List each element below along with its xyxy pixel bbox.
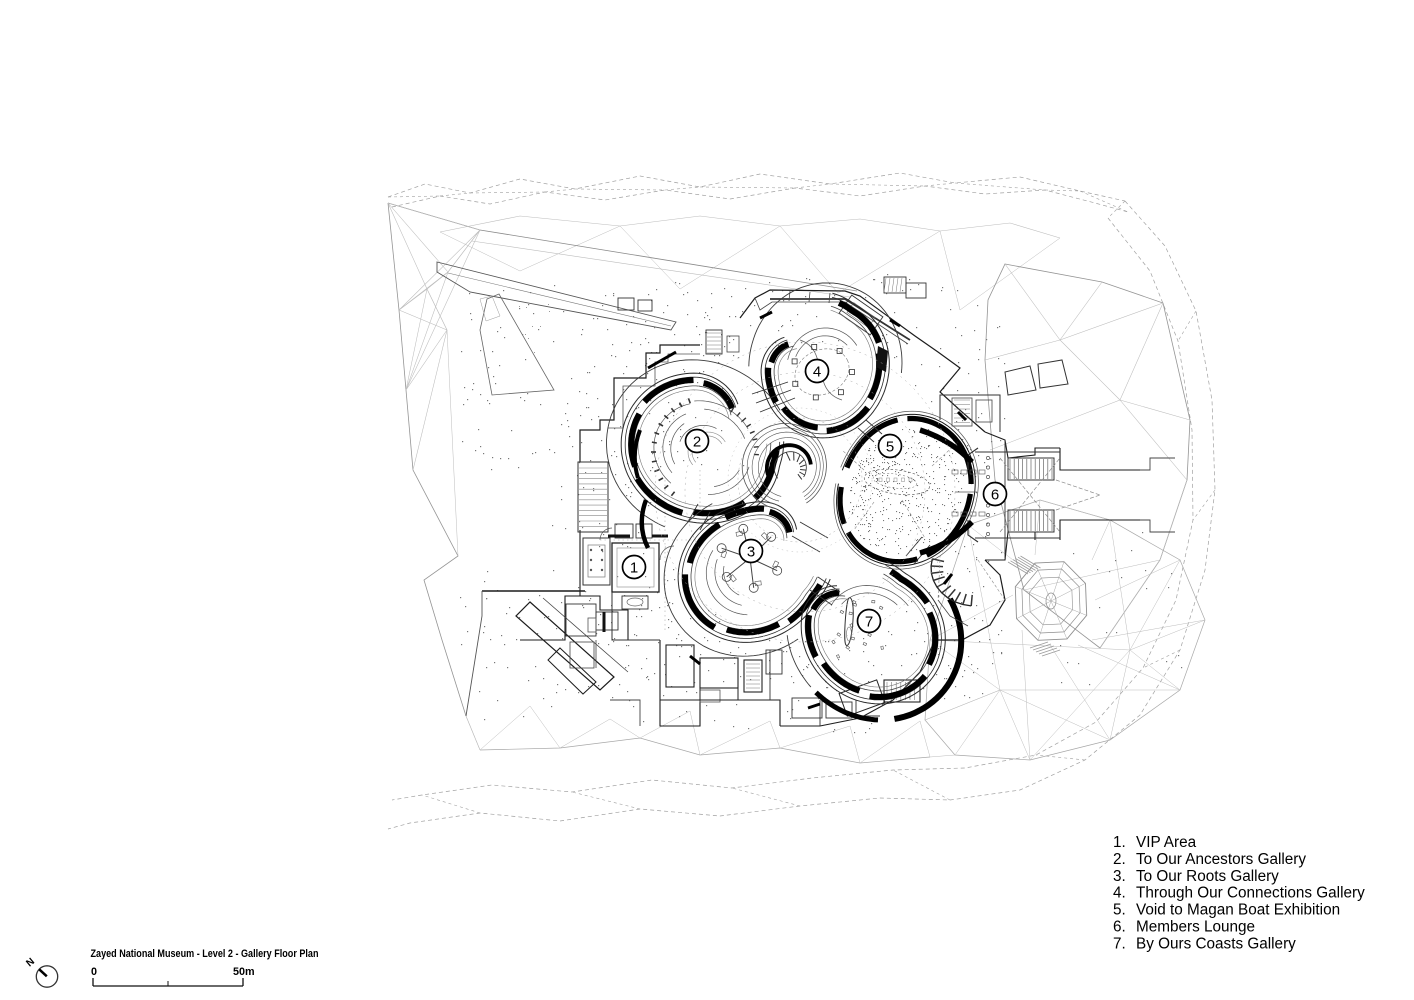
- svg-text:6.: 6.: [1113, 919, 1126, 936]
- svg-text:5: 5: [886, 438, 894, 455]
- svg-text:N: N: [24, 956, 37, 969]
- svg-text:4: 4: [813, 363, 821, 380]
- svg-text:1: 1: [630, 559, 638, 576]
- svg-text:0: 0: [91, 966, 97, 978]
- svg-text:50m: 50m: [233, 966, 255, 978]
- svg-text:7: 7: [865, 613, 873, 630]
- svg-text:3.: 3.: [1113, 868, 1126, 885]
- svg-text:Through Our Connections Galler: Through Our Connections Gallery: [1136, 885, 1365, 902]
- svg-text:5.: 5.: [1113, 902, 1126, 919]
- svg-text:Void to Magan Boat Exhibition: Void to Magan Boat Exhibition: [1136, 902, 1340, 919]
- svg-text:4.: 4.: [1113, 885, 1126, 902]
- svg-text:3: 3: [747, 543, 755, 560]
- svg-text:To Our Roots Gallery: To Our Roots Gallery: [1136, 868, 1279, 885]
- svg-text:By Ours Coasts Gallery: By Ours Coasts Gallery: [1136, 935, 1296, 952]
- svg-text:To Our Ancestors Gallery: To Our Ancestors Gallery: [1136, 851, 1306, 868]
- svg-text:Members Lounge: Members Lounge: [1136, 919, 1255, 936]
- svg-text:2: 2: [693, 433, 701, 450]
- svg-text:2.: 2.: [1113, 851, 1126, 868]
- svg-text:Zayed National Museum - Level: Zayed National Museum - Level 2 - Galler…: [91, 948, 319, 960]
- svg-text:6: 6: [991, 486, 999, 503]
- svg-text:1.: 1.: [1113, 834, 1126, 851]
- svg-text:7.: 7.: [1113, 935, 1126, 952]
- svg-text:VIP Area: VIP Area: [1136, 834, 1197, 851]
